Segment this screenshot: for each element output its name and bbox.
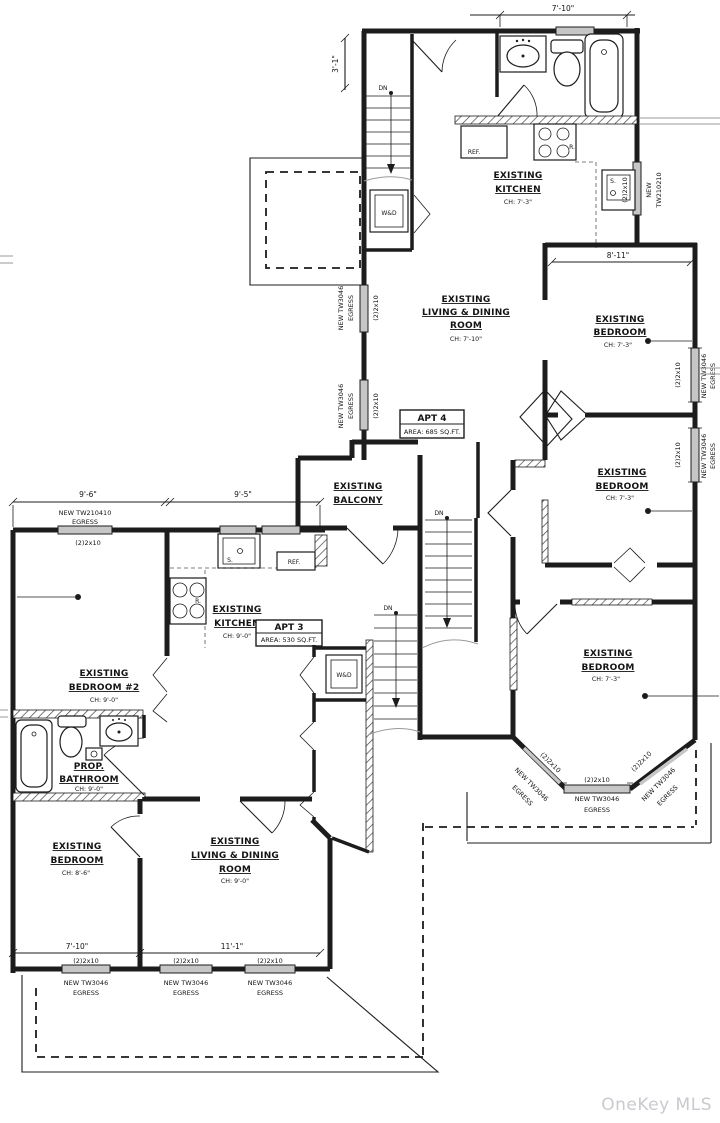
apt3-bedroom2-label: EXISTING [80,669,129,679]
apt3-bedroom: EXISTING BEDROOM CH: 8'-6" [50,799,312,969]
wd-label: W&D [336,672,352,679]
window-header-label: (2)2x10 [674,362,682,387]
apt3-bedroom2-label: BEDROOM #2 [69,683,140,693]
window [691,348,699,402]
apt3-bedroom-ch: CH: 8'-6" [62,870,90,877]
window-header-label: (2)2x10 [173,957,198,965]
apt3-bottom-wall: 7'-10" 11'-1" (2)2x10 (2)2x10 (2)2x10 NE… [9,942,330,997]
window-header-label: (2)2x10 [75,539,100,547]
window-label-tw210210: TW210210 [655,172,663,208]
apt3-kitchen-ch: CH: 9'-0" [223,633,251,640]
toilet-tank [551,40,583,53]
dim-apt3-right: 9'-5" [234,490,252,499]
bedroom2-label: EXISTING [598,468,647,478]
bedroom-right-top: 8'-11" EXISTING BEDROOM CH: 7'-3" (2)2x1… [488,243,717,602]
window-label-tw3046: NEW TW3046 [64,979,108,987]
window-header-label: (2)2x10 [621,177,629,202]
bedroom2-ch: CH: 7'-3" [606,495,634,502]
window-label-tw3046: NEW TW3046 [700,434,708,478]
dim-apt3-left: 9'-6" [79,490,97,499]
apt3-bathroom-label: PROP. [74,762,105,772]
window-label-egress: EGRESS [173,989,199,997]
window [360,380,368,430]
window [245,965,295,973]
window [58,526,112,534]
apt3-bedroom2-ch: CH: 9'-0" [90,697,118,704]
apt4-bathroom [497,33,623,118]
apt3-title: APT 3 [274,623,303,633]
ref-label: REF. [468,149,480,156]
bedroom2-label: BEDROOM [595,482,648,492]
apt4-living-label: ROOM [450,321,482,331]
toilet-tank [58,716,86,727]
apt3-living-label: ROOM [219,865,251,875]
apt4-title: APT 4 [417,414,446,424]
window-label-egress: EGRESS [347,295,355,321]
cabinet [86,748,102,760]
bathtub-inner [590,40,618,112]
window-header-label: (2)2x10 [630,750,654,774]
toilet-bowl [60,727,82,757]
wd-label: W&D [381,210,397,217]
kitchen-wall [455,116,637,124]
window-header-label: (2)2x10 [372,295,380,320]
dim-bedroom-width: 8'-11" [607,251,630,260]
ref-label: REF. [288,559,300,566]
window [360,285,368,332]
apt3-kitchen: S. REF. R. EXISTING KITCHEN CH: 9'-0" AP… [170,534,327,648]
window [262,526,300,534]
sink-label: S. [610,178,616,185]
apt3-living: EXISTING LIVING & DINING ROOM CH: 9'-0" [191,820,330,969]
apt4-stairs-top: DN W&D [364,34,456,250]
window [691,428,699,482]
dim-top-width: 7'-10" [552,4,575,13]
apt3-living-label: EXISTING [211,837,260,847]
bedroom1-label: EXISTING [596,315,645,325]
range-label: R. [569,144,575,151]
bedroom3-label: EXISTING [584,649,633,659]
apt3-bathroom: PROP. BATHROOM CH: 9'-0" [13,710,145,801]
window-label-tw3046: NEW TW3046 [248,979,292,987]
apt4-living-ch: CH: 7'-10" [450,336,482,343]
apt3-bedroom-label: EXISTING [53,842,102,852]
window-label-tw3046: NEW TW3046 [164,979,208,987]
apt3-bedroom2: EXISTING BEDROOM #2 CH: 9'-0" [17,530,167,722]
apt3-kitchen-label: EXISTING [213,605,262,615]
bedroom1-label: BEDROOM [593,328,646,338]
apt3-corridor: W&D DN [300,605,423,1057]
stair-dn-label: DN [378,85,387,92]
window [62,965,110,973]
window-label-tw3046: NEW TW3046 [575,795,619,803]
ceiling-light [75,594,81,600]
apt3-bathroom-ch: CH: 9'-0" [75,786,103,793]
stair-dn-label: DN [434,510,443,517]
window-label-tw3046: NEW TW3046 [337,286,345,330]
window-label-egress: EGRESS [347,393,355,419]
balcony-label: EXISTING [334,482,383,492]
window [564,785,630,793]
window-header-label: (2)2x10 [674,442,682,467]
window-header-label: (2)2x10 [372,393,380,418]
range-label: R. [195,598,201,605]
apt3-area: AREA: 530 SQ.FT. [261,636,317,644]
ceiling-light [645,508,651,514]
window-label-tw210210: NEW [645,182,653,198]
window-header-label: (2)2x10 [257,957,282,965]
apt4-kitchen-label: EXISTING [494,171,543,181]
window-label-egress: EGRESS [709,443,717,469]
window [220,526,256,534]
window-label-egress: EGRESS [72,518,98,526]
floor-plan-drawing: REF. R. S. EXISTING KITCHEN CH: 7'-3" (2… [0,0,720,1123]
window-label-tw3046: NEW TW3046 [700,354,708,398]
stair-dn-label: DN [383,605,392,612]
bathtub-inner [21,725,47,787]
center-hall-stairs: DN [420,442,513,740]
window-label-egress: EGRESS [73,989,99,997]
apt3-bathroom-label: BATHROOM [59,775,119,785]
window-header-label: (2)2x10 [584,776,609,784]
window-label-egress: EGRESS [257,989,283,997]
floor-plan-sheet: REF. R. S. EXISTING KITCHEN CH: 7'-3" (2… [0,0,720,1123]
apt4-kitchen: REF. R. S. EXISTING KITCHEN CH: 7'-3" (2… [455,116,663,248]
window-label-tw3046: NEW TW3046 [337,384,345,428]
apt4-unit-box: APT 4 AREA: 685 SQ.FT. [400,410,464,438]
sink-label: S. [227,557,233,564]
toilet-bowl [554,52,580,86]
apt4-kitchen-ch: CH: 7'-3" [504,199,532,206]
apt3-bedroom-label: BEDROOM [50,856,103,866]
apt3-living-ch: CH: 9'-0" [221,878,249,885]
window-label-egress: EGRESS [584,806,610,814]
window [160,965,212,973]
apt4-living-label: EXISTING [442,295,491,305]
apt3-unit-box: APT 3 AREA: 530 SQ.FT. [256,620,322,646]
apt4-kitchen-label: KITCHEN [495,185,541,195]
ceiling-light [645,338,651,344]
bedroom3-ch: CH: 7'-3" [592,676,620,683]
window-header-label: (2)2x10 [73,957,98,965]
balcony-label: BALCONY [333,496,383,506]
apt4-area: AREA: 685 SQ.FT. [404,428,460,436]
dim-bottom-left: 7'-10" [66,942,89,951]
roof-outline-left [250,158,362,285]
window-label-egress: EGRESS [709,363,717,389]
watermark: OneKey MLS [601,1095,712,1115]
bedroom1-ch: CH: 7'-3" [604,342,632,349]
dim-top-left-height: 3'-1" [331,55,340,73]
ceiling-light [642,693,648,699]
bedroom-right-bottom: EXISTING BEDROOM CH: 7'-3" (2)2x10 NEW T… [510,599,719,814]
apt4-living-label: LIVING & DINING [422,308,510,318]
window [556,27,594,35]
kitchen-sink [218,534,260,568]
bedroom3-label: BEDROOM [581,663,634,673]
window-label-tw210410: NEW TW210410 [59,509,112,517]
dim-bottom-right: 11'-1" [221,942,244,951]
apt3-living-label: LIVING & DINING [191,851,279,861]
apt3-kitchen-label: KITCHEN [214,619,260,629]
